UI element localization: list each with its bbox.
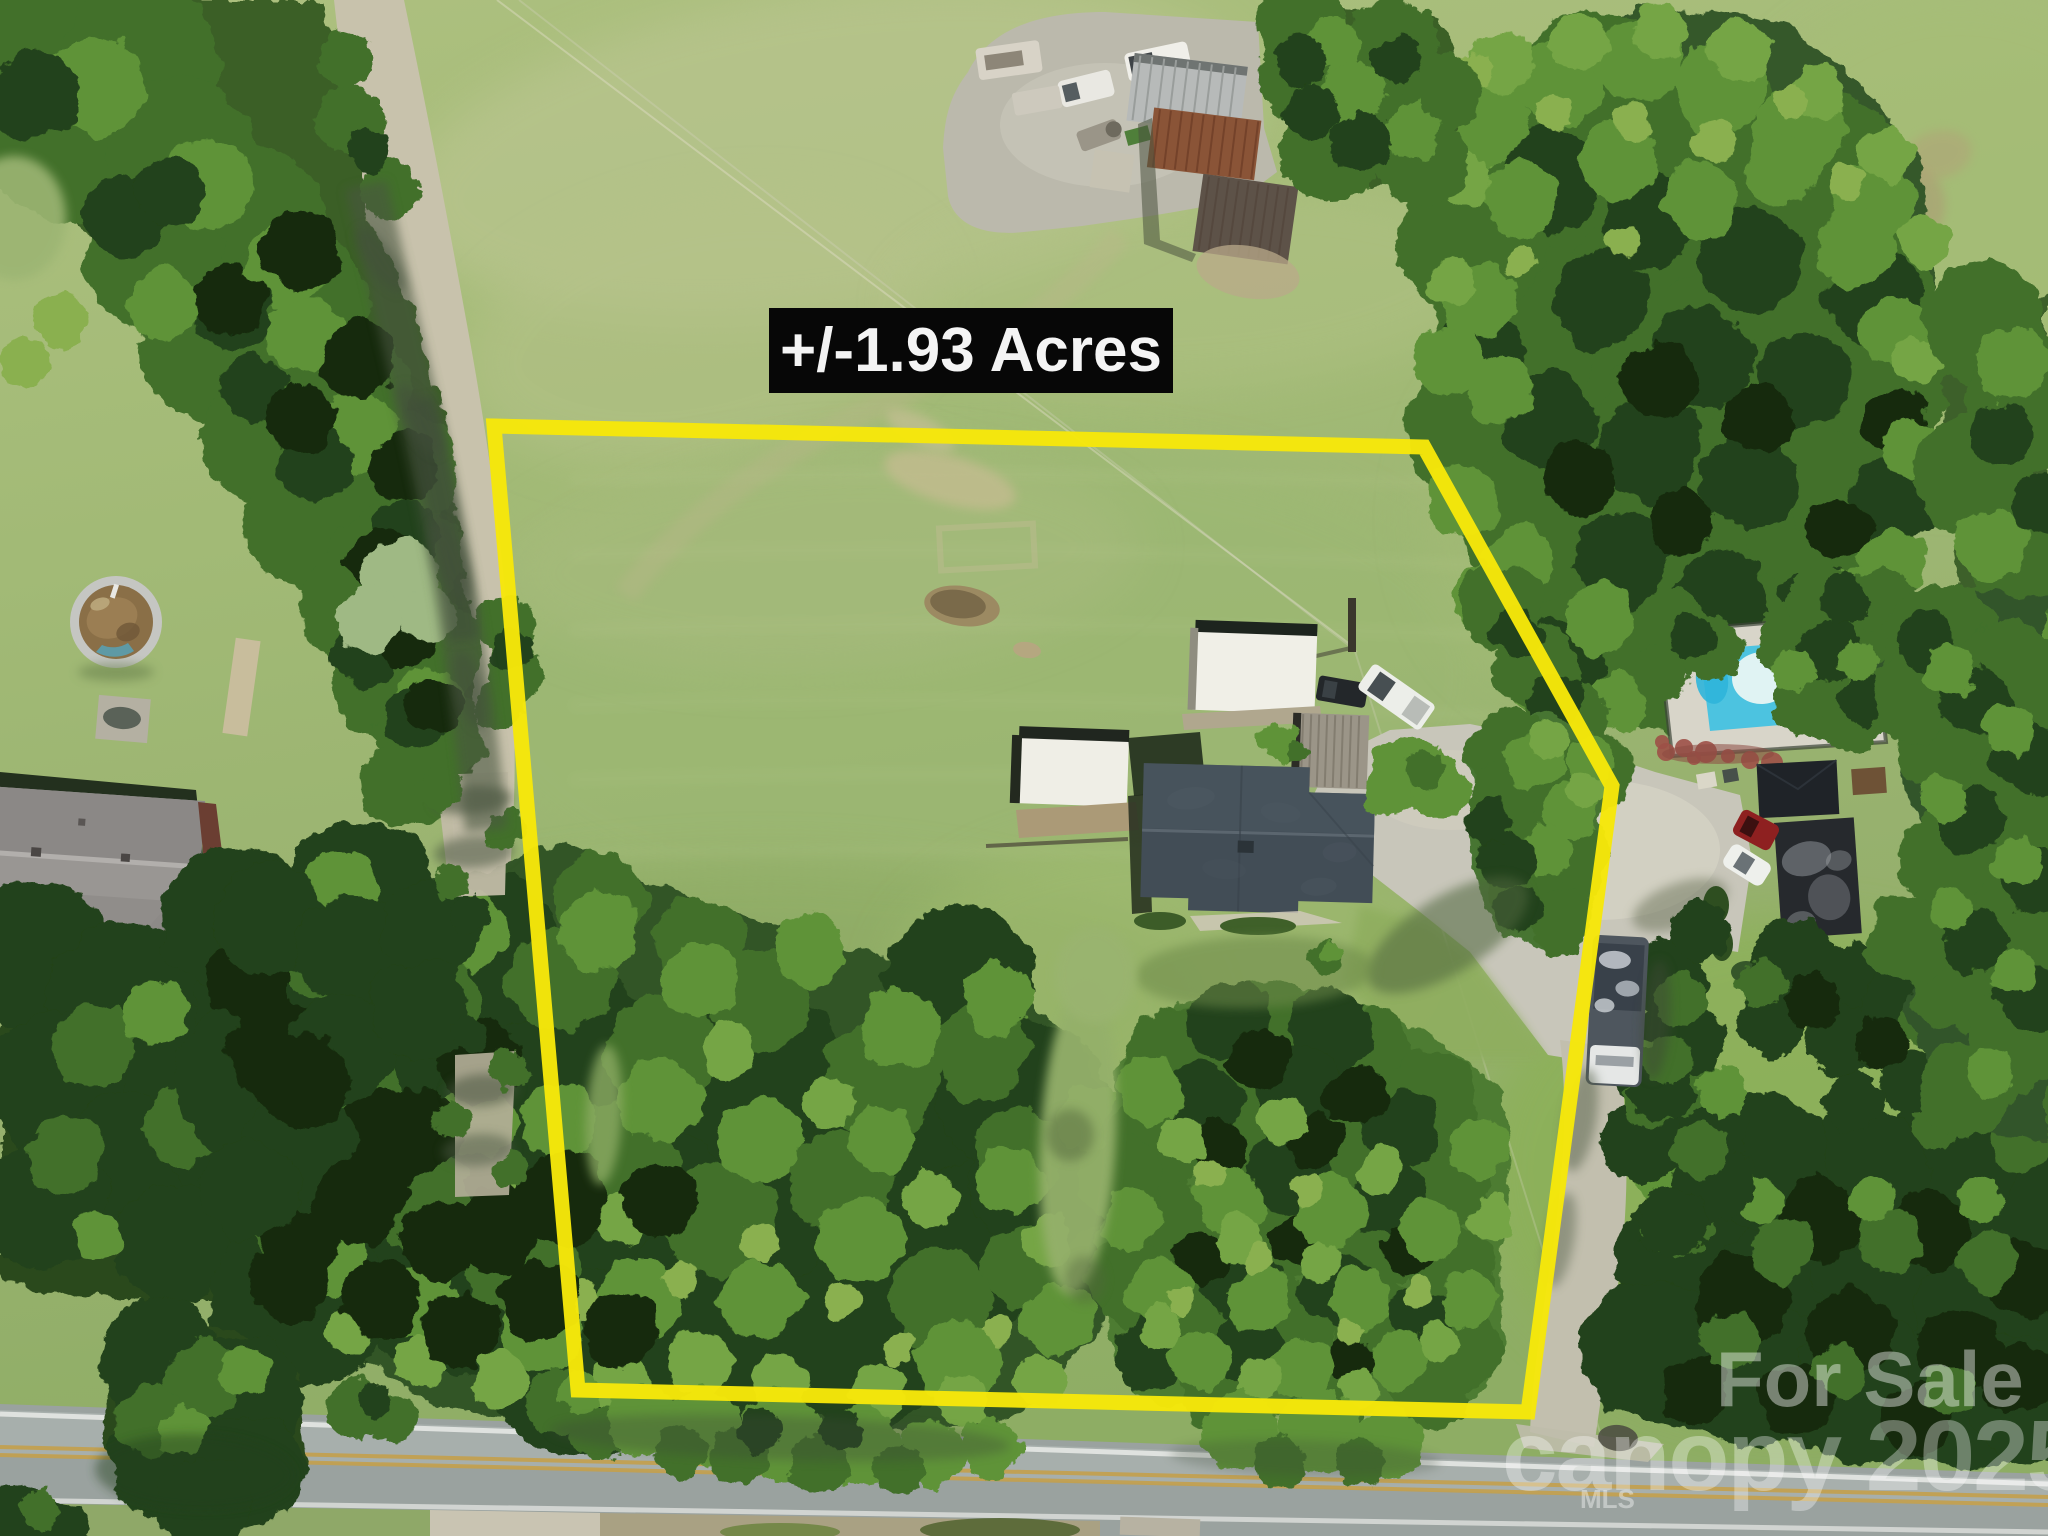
svg-text:MLS: MLS <box>1580 1484 1635 1514</box>
svg-text:+/-1.93 Acres: +/-1.93 Acres <box>780 316 1162 385</box>
